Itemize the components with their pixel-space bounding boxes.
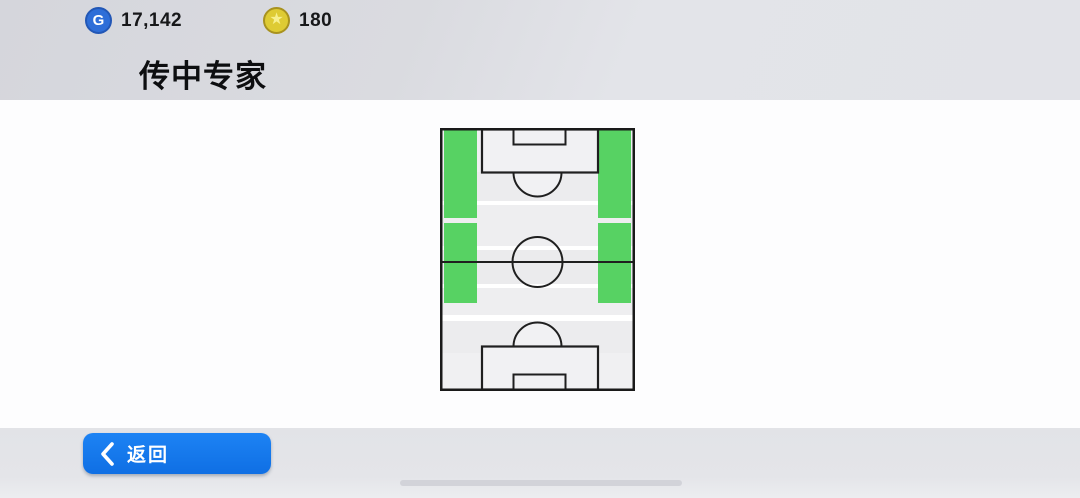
back-button[interactable]: 返回	[83, 433, 271, 474]
pitch-markings	[440, 128, 635, 391]
home-indicator-bar	[400, 480, 682, 486]
star-currency: ★ 180	[263, 7, 332, 34]
chevron-left-icon	[100, 441, 115, 467]
page-title: 传中专家	[139, 51, 267, 96]
content-panel	[0, 100, 1080, 428]
top-header: G 17,142 ★ 180 传中专家	[0, 0, 1080, 100]
star-coin-icon: ★	[263, 7, 290, 34]
bottom-bar: 返回	[0, 428, 1080, 498]
star-balance: 180	[299, 10, 332, 32]
star-glyph: ★	[269, 12, 283, 28]
pitch-diagram	[440, 128, 635, 391]
back-button-label: 返回	[127, 440, 169, 467]
gp-currency: G 17,142	[85, 7, 182, 34]
gp-coin-icon: G	[85, 7, 112, 34]
gp-balance: 17,142	[121, 10, 182, 32]
gp-coin-letter: G	[93, 13, 105, 28]
